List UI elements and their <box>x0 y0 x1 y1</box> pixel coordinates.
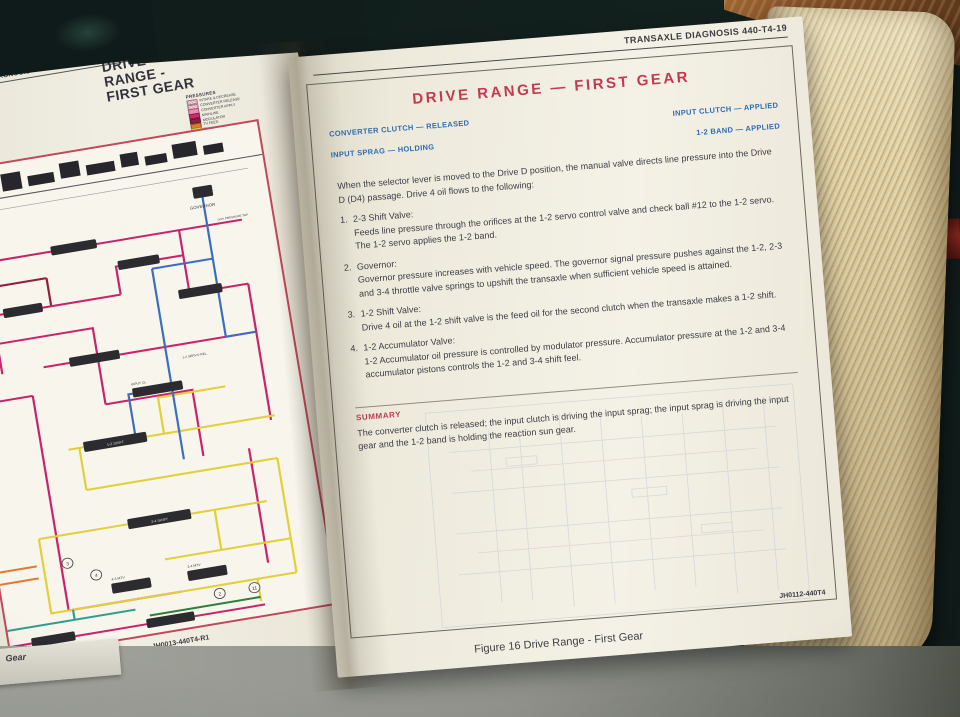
page-content: DRIVE RANGE — FIRST GEAR CONVERTER CLUTC… <box>308 60 821 455</box>
item-number: 4. <box>350 342 359 356</box>
governor-label: GOVERNOR <box>189 202 215 211</box>
tv-circuit <box>19 379 304 635</box>
previous-figure-caption-fragment: Gear <box>5 652 26 664</box>
tv-feed-circuit <box>0 566 39 585</box>
band-status: 1-2 BAND — APPLIED <box>674 121 780 138</box>
input-clutch-status: INPUT CLUTCH — APPLIED <box>672 101 778 118</box>
hydraulic-diagram: GOVERNOR GOV PRESSURE TAP INPUT CL. 1-2 … <box>0 121 337 657</box>
accumulator-12-circuit <box>6 600 136 631</box>
status-column-left: CONVERTER CLUTCH — RELEASED INPUT SPRAG … <box>329 118 472 166</box>
mtv-24-label: 2-4 MTV <box>187 563 202 569</box>
input-sprag-status: INPUT SPRAG — HOLDING <box>330 139 471 159</box>
status-column-right: INPUT CLUTCH — APPLIED 1-2 BAND — APPLIE… <box>672 101 780 139</box>
converter-clutch-status: CONVERTER CLUTCH — RELEASED <box>329 118 470 138</box>
transaxle-cross-section <box>0 135 226 214</box>
accumulator-23-circuit <box>150 597 261 616</box>
photo-scene: E DIAGNOSIS DRIVE RANGE - FIRST GEAR PRE… <box>0 0 960 717</box>
input-clutch-label: INPUT CL. <box>131 380 147 386</box>
right-page: TRANSAXLE DIAGNOSIS 440-T4-19 DRIVE RANG… <box>288 16 852 677</box>
check-balls: 3 4 2 11 <box>61 528 261 624</box>
item-number: 1. <box>340 213 349 227</box>
body-text: When the selector lever is moved to the … <box>337 145 796 383</box>
mtv-43-label: 4-3 MTV <box>111 575 126 581</box>
hydraulic-diagram-frame: GOVERNOR GOV PRESSURE TAP INPUT CL. 1-2 … <box>0 119 340 659</box>
item-number: 2. <box>343 261 352 275</box>
item-number: 3. <box>347 308 356 322</box>
page-border-box: DRIVE RANGE — FIRST GEAR CONVERTER CLUTC… <box>306 45 837 638</box>
servo-release-label: 1-2 SERVO REL. <box>182 351 208 359</box>
